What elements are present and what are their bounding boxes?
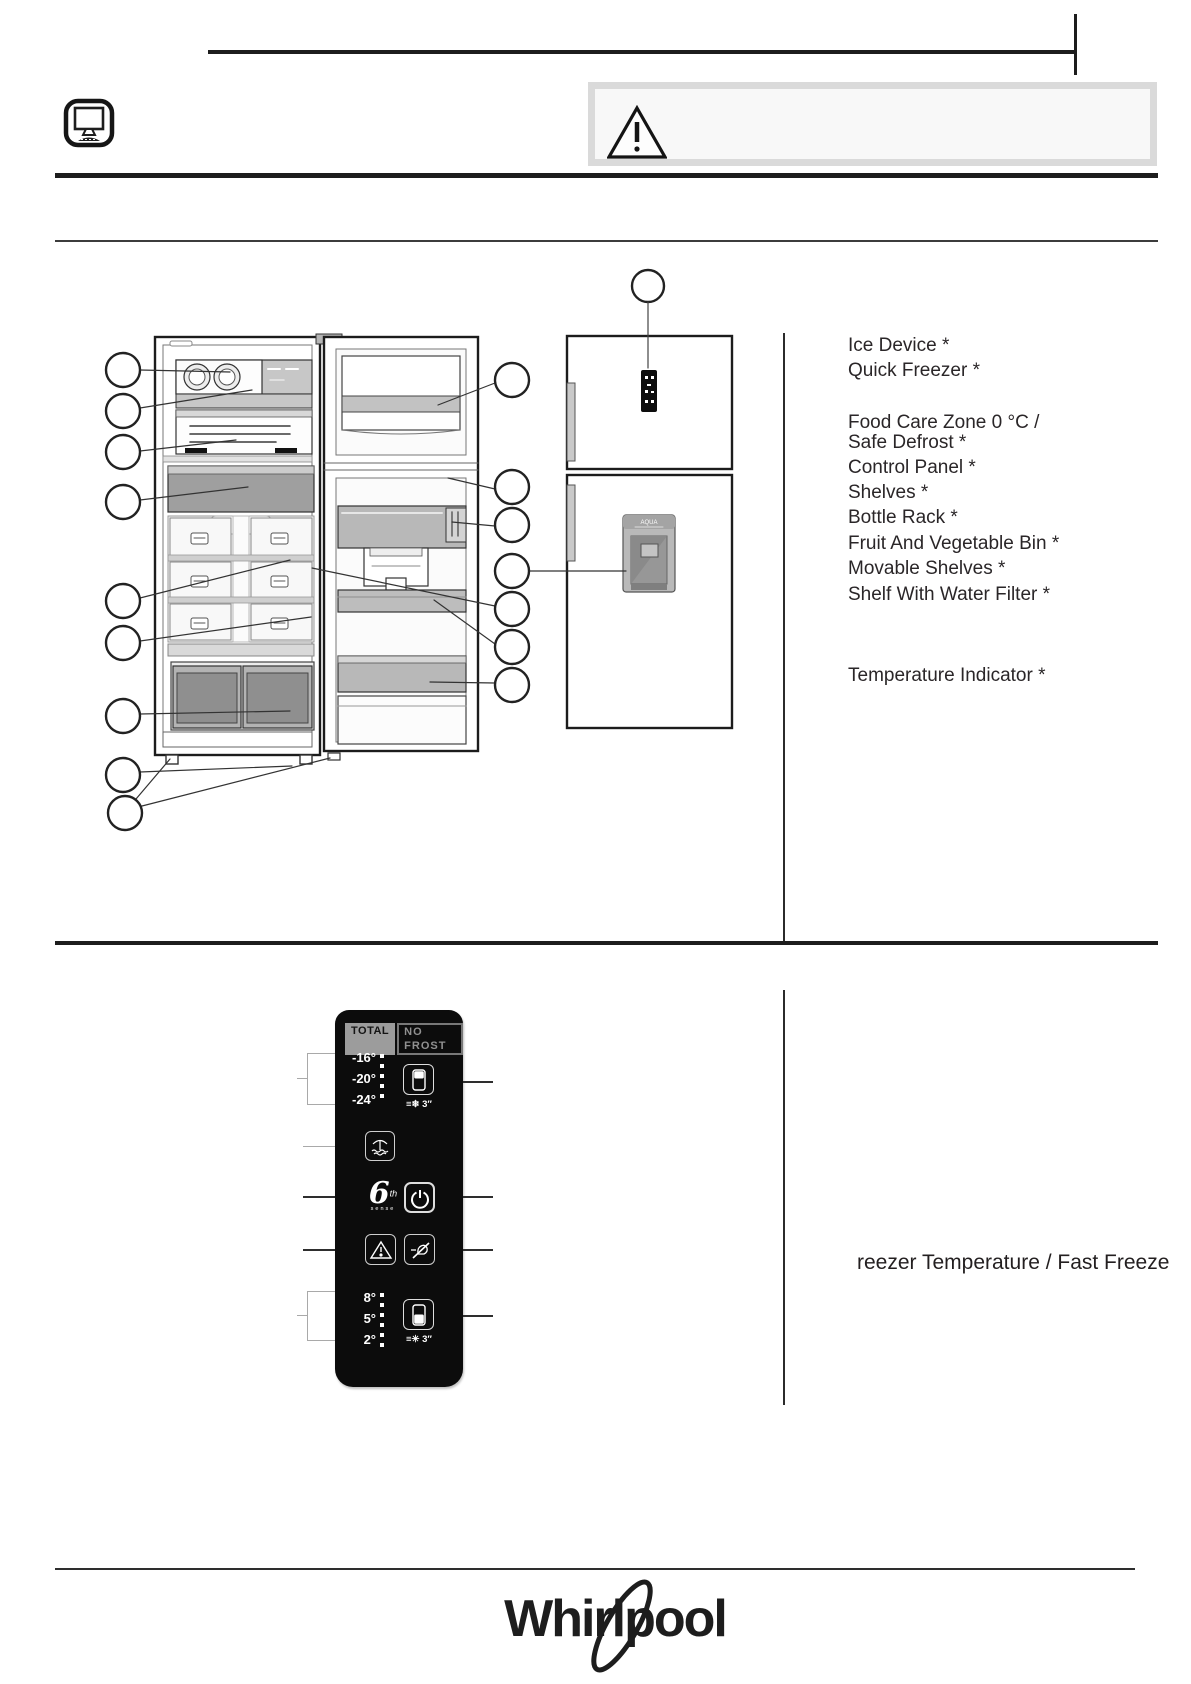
header-rule-tick xyxy=(1074,14,1077,75)
freezer-temp--16: -16° xyxy=(348,1051,376,1065)
freezer-temps-bracket xyxy=(307,1053,335,1105)
alarm-off-icon xyxy=(408,1239,432,1261)
fridge-temp-indicator-dot xyxy=(380,1303,384,1307)
legend-item: Quick Freezer * xyxy=(848,360,980,382)
water-dispenser: AQUA xyxy=(623,515,675,592)
fridge-closed-front: AQUA xyxy=(567,270,732,728)
computer-icon xyxy=(63,98,115,148)
freezer-temp-indicator-dot xyxy=(380,1064,384,1068)
fridge-temp-indicator-dot xyxy=(380,1343,384,1347)
legend-item: Control Panel * xyxy=(848,457,976,479)
freezer-temp--20: -20° xyxy=(348,1072,376,1086)
footer-rule xyxy=(55,1568,1135,1570)
legend-item: Fruit And Vegetable Bin * xyxy=(848,533,1059,555)
callout-line xyxy=(463,1081,493,1083)
door-control-panel xyxy=(641,370,657,412)
fridge-temp-indicator-dot xyxy=(380,1323,384,1327)
fridge-hold-label: ≡✳ 3″ xyxy=(397,1334,441,1345)
power-icon xyxy=(409,1187,431,1209)
freezer-fast-freeze-caption: reezer Temperature / Fast Freeze xyxy=(857,1251,1169,1275)
legend-item: Temperature Indicator * xyxy=(848,665,1046,687)
section-divider-2 xyxy=(55,240,1158,242)
callout-line xyxy=(303,1196,335,1198)
fridge-temp-5: 5° xyxy=(348,1312,376,1326)
freezer-hold-label: ≡❄ 3″ xyxy=(397,1099,441,1110)
callout-line xyxy=(297,1315,307,1316)
legend-item: Shelf With Water Filter * xyxy=(848,584,1050,606)
freezer-temp-indicator-dot xyxy=(380,1084,384,1088)
legend-item: Movable Shelves * xyxy=(848,558,1005,580)
freezer-temp-indicator-dot xyxy=(380,1074,384,1078)
fridge-temp-2: 2° xyxy=(348,1333,376,1347)
fridge-diagram: AQUA xyxy=(90,250,790,870)
whirlpool-logo: Whirlpool xyxy=(470,1578,760,1678)
badge-no-frost: NO FROST xyxy=(397,1023,463,1055)
header-rule xyxy=(208,50,1074,54)
callout-line xyxy=(463,1315,493,1317)
freezer-temp--24: -24° xyxy=(348,1093,376,1107)
freezer-temp-indicator-dot xyxy=(380,1054,384,1058)
sixth-sense-th: th xyxy=(390,1189,398,1199)
freezer-temp-indicator-dot xyxy=(380,1094,384,1098)
power-button[interactable] xyxy=(404,1182,435,1213)
fridge-temp-8: 8° xyxy=(348,1291,376,1305)
control-panel: TOTAL NO FROST -16° -20° -24° ≡❄ 3″ 6th … xyxy=(335,1010,463,1387)
warning-box xyxy=(588,82,1157,166)
alarm-warning-icon xyxy=(369,1239,393,1261)
callout-circle xyxy=(632,270,664,302)
fridge-open-door xyxy=(316,334,478,760)
section-divider-3 xyxy=(55,941,1158,945)
callout-line xyxy=(303,1249,335,1251)
callout-line xyxy=(303,1146,335,1147)
manual-page: { "legend": { "items": [ "Ice Device *",… xyxy=(0,0,1191,1684)
sixth-sense-logo: 6th sense xyxy=(363,1180,403,1212)
fridge-temp-indicator-dot xyxy=(380,1333,384,1337)
callout-line xyxy=(463,1196,493,1198)
legend-separator xyxy=(783,333,785,944)
vacation-icon xyxy=(369,1135,391,1157)
legend-item: Ice Device * xyxy=(848,335,949,357)
fridge-temperature-button[interactable] xyxy=(403,1299,434,1330)
freezer-compartment-icon xyxy=(412,1069,426,1091)
panel-legend-separator xyxy=(783,990,785,1405)
callout-line xyxy=(463,1249,493,1251)
fridge-compartment-icon xyxy=(412,1304,426,1326)
fridge-temps-bracket xyxy=(307,1291,335,1341)
freezer-temperature-button[interactable] xyxy=(403,1064,434,1095)
legend-item: Bottle Rack * xyxy=(848,507,958,529)
alarm-off-button[interactable] xyxy=(404,1234,435,1265)
alarm-button[interactable] xyxy=(365,1234,396,1265)
legend-item: Shelves * xyxy=(848,482,928,504)
section-divider-1 xyxy=(55,173,1158,178)
dispenser-label: AQUA xyxy=(640,520,657,526)
warning-triangle-icon xyxy=(607,105,667,161)
whirlpool-logo-text: Whirlpool xyxy=(504,1590,726,1648)
legend-item: Safe Defrost * xyxy=(848,432,966,454)
callout-line xyxy=(297,1078,307,1079)
fridge-temp-indicator-dot xyxy=(380,1293,384,1297)
legend-item: Food Care Zone 0 °C / xyxy=(848,412,1039,434)
fridge-temp-indicator-dot xyxy=(380,1313,384,1317)
vacation-mode-button[interactable] xyxy=(365,1131,395,1161)
